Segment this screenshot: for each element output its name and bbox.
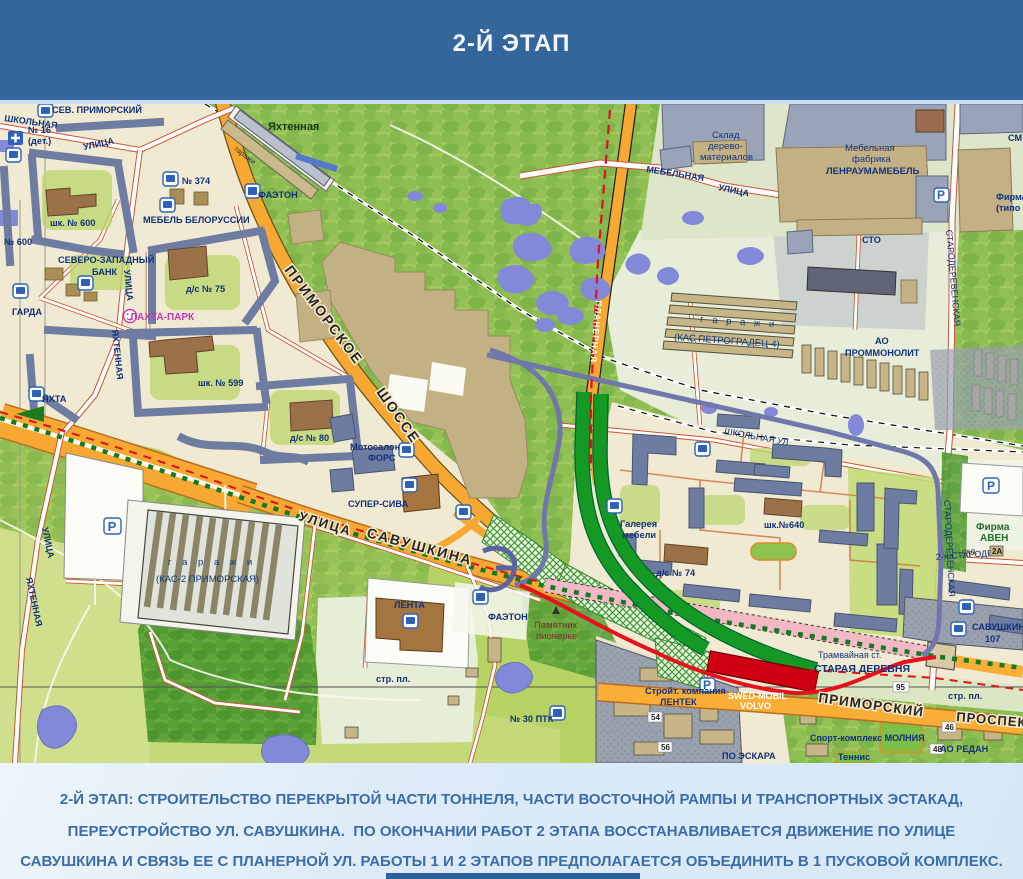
svg-text:д/с № 75: д/с № 75 [186, 284, 225, 294]
svg-text:(КАС-2 ПРИМОРСКАЯ): (КАС-2 ПРИМОРСКАЯ) [156, 574, 259, 585]
svg-text:ФАЭТОН: ФАЭТОН [258, 190, 298, 200]
svg-text:ФАЭТОН: ФАЭТОН [488, 612, 528, 622]
svg-text:д/с № 80: д/с № 80 [290, 433, 329, 443]
svg-text:САВУШКИН: САВУШКИН [972, 622, 1023, 632]
svg-text:АО РЕДАН: АО РЕДАН [940, 744, 989, 754]
svg-text:Стройт. компания: Стройт. компания [645, 686, 726, 696]
svg-text:СУПЕР-СИВА: СУПЕР-СИВА [348, 499, 409, 509]
svg-text:МЕБЕЛЬ БЕЛОРУССИИ: МЕБЕЛЬ БЕЛОРУССИИ [143, 215, 250, 225]
svg-text:АО: АО [875, 336, 889, 346]
svg-text:ЛЕНТА: ЛЕНТА [394, 600, 425, 610]
svg-text:56: 56 [661, 743, 670, 752]
svg-text:54: 54 [651, 713, 660, 722]
svg-text:P: P [937, 188, 945, 202]
svg-text:№ 600: № 600 [4, 237, 32, 247]
svg-text:№ 374: № 374 [182, 176, 211, 186]
svg-text:СМ: СМ [1008, 133, 1023, 143]
svg-text:95: 95 [896, 683, 905, 692]
svg-text:Фирма: Фирма [996, 192, 1023, 202]
svg-text:шк.№640: шк.№640 [764, 520, 804, 530]
svg-text:материалов: материалов [700, 152, 753, 163]
svg-text:ЛЕНТЕК: ЛЕНТЕК [660, 697, 697, 707]
svg-text:(типо: (типо [996, 203, 1021, 213]
svg-text:SWED-MOBIL: SWED-MOBIL [728, 691, 787, 701]
svg-text:мебели: мебели [622, 530, 656, 540]
svg-text:шк. № 600: шк. № 600 [50, 218, 96, 228]
svg-text:107: 107 [985, 634, 1000, 644]
svg-text:ПРОММОНОЛИТ: ПРОММОНОЛИТ [845, 348, 920, 358]
svg-text:ЛАХТА-ПАРК: ЛАХТА-ПАРК [130, 312, 195, 323]
svg-text:(дет.): (дет.) [28, 136, 51, 146]
svg-text:№ 30 ПТК: № 30 ПТК [510, 714, 554, 724]
svg-text:СТО: СТО [862, 235, 881, 245]
svg-text:Склад: Склад [712, 130, 740, 141]
svg-text:пионерке: пионерке [536, 631, 577, 642]
svg-text:д/с № 74: д/с № 74 [656, 568, 696, 578]
svg-text:скл.: скл. [962, 546, 977, 556]
svg-text:Мебельная: Мебельная [845, 143, 895, 154]
svg-text:СЕВ. ПРИМОРСКИЙ: СЕВ. ПРИМОРСКИЙ [52, 104, 142, 115]
svg-text:Теннис: Теннис [838, 752, 870, 762]
svg-text:стр. пл.: стр. пл. [948, 691, 982, 701]
svg-text:Спорт-комплекс МОЛНИЯ: Спорт-комплекс МОЛНИЯ [810, 733, 925, 743]
svg-text:ЛЕНРАУМАМЕБЕЛЬ: ЛЕНРАУМАМЕБЕЛЬ [826, 166, 920, 177]
svg-text:2А: 2А [992, 547, 1002, 556]
svg-text:VOLVO: VOLVO [740, 701, 771, 711]
svg-text:СЕВЕРО-ЗАПАДНЫЙ: СЕВЕРО-ЗАПАДНЫЙ [58, 254, 154, 265]
svg-text:P: P [108, 519, 117, 534]
svg-text:АВЕН: АВЕН [980, 533, 1008, 544]
svg-text:46: 46 [945, 723, 954, 732]
svg-text:шк. № 599: шк. № 599 [198, 378, 244, 388]
svg-text:ГАРДА: ГАРДА [12, 307, 42, 317]
svg-text:дерево-: дерево- [708, 141, 743, 152]
svg-text:ФОРС: ФОРС [368, 453, 396, 463]
svg-text:стр. пл.: стр. пл. [376, 674, 410, 684]
svg-text:БАНК: БАНК [92, 267, 118, 277]
svg-text:г а р а ж и: г а р а ж и [168, 557, 256, 568]
svg-text:Мотосалон: Мотосалон [350, 442, 400, 452]
svg-text:Галерея: Галерея [620, 519, 657, 529]
svg-text:Памятник: Памятник [534, 620, 578, 631]
svg-text:Трамвайная ст.: Трамвайная ст. [818, 650, 881, 660]
svg-text:ПО ЭСКАРА: ПО ЭСКАРА [722, 751, 776, 761]
svg-text:Яхтенная: Яхтенная [268, 121, 319, 133]
svg-text:СТАРАЯ ДЕРЕВНЯ: СТАРАЯ ДЕРЕВНЯ [814, 663, 910, 675]
svg-text:ЯХТА: ЯХТА [42, 394, 67, 404]
svg-text:Фирма: Фирма [976, 522, 1010, 533]
svg-text:P: P [987, 479, 995, 493]
svg-text:фабрика: фабрика [852, 154, 891, 165]
